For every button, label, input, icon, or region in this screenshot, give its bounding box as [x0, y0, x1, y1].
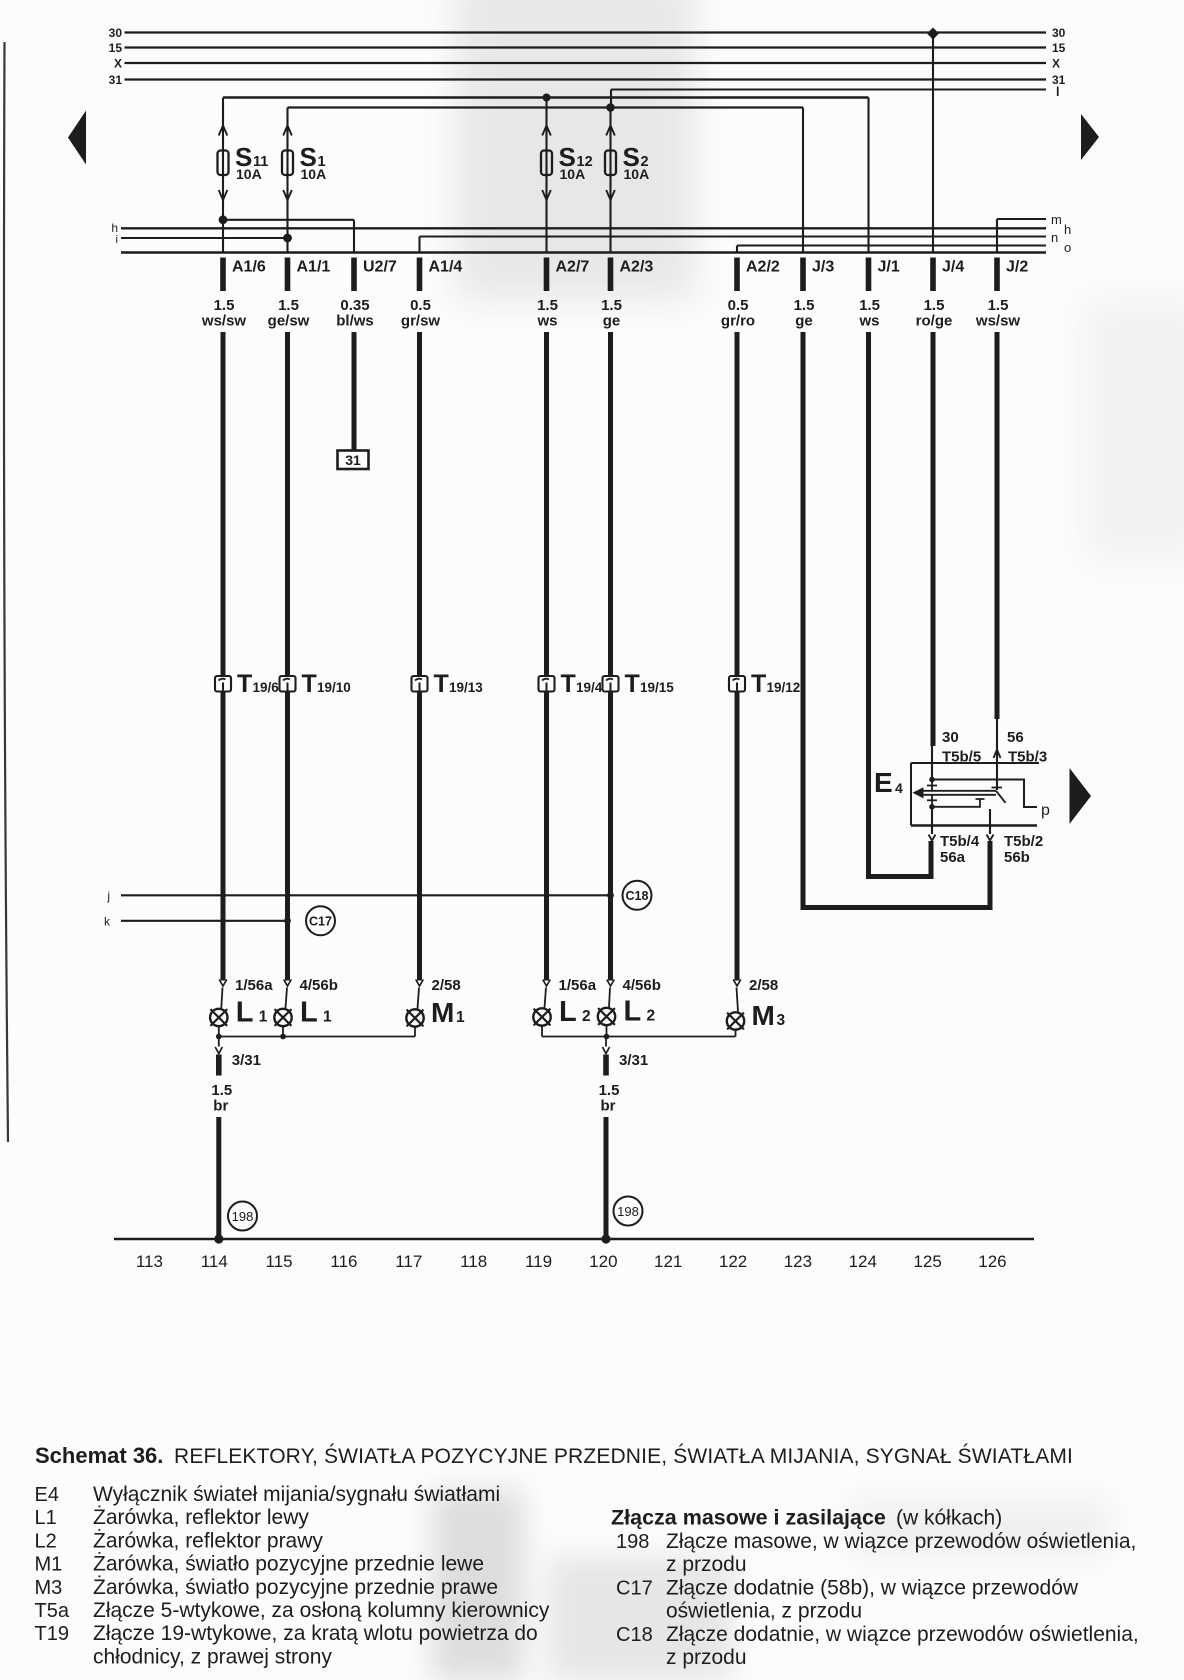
svg-text:M1: M1: [35, 1554, 63, 1576]
svg-text:l: l: [1056, 85, 1059, 99]
svg-text:L: L: [559, 996, 577, 1028]
svg-text:br: br: [213, 1098, 228, 1115]
svg-text:(w kółkach): (w kółkach): [896, 1507, 1002, 1530]
svg-text:h: h: [111, 221, 118, 235]
svg-text:ws: ws: [858, 313, 879, 330]
svg-text:1.5: 1.5: [601, 297, 622, 314]
svg-text:A2/3: A2/3: [620, 259, 654, 276]
svg-text:ge: ge: [603, 313, 621, 330]
svg-text:115: 115: [266, 1252, 293, 1271]
svg-text:n: n: [1051, 230, 1058, 245]
svg-text:T19: T19: [35, 1623, 69, 1645]
svg-text:gr/ro: gr/ro: [721, 313, 755, 330]
svg-text:1.5: 1.5: [211, 1082, 232, 1099]
svg-text:L: L: [300, 997, 318, 1029]
svg-text:L2: L2: [35, 1530, 57, 1552]
svg-text:Złącze 5-wtykowe, za osłoną ko: Złącze 5-wtykowe, za osłoną kolumny kier…: [93, 1599, 550, 1622]
svg-text:3/31: 3/31: [619, 1052, 648, 1069]
svg-text:M: M: [752, 1000, 775, 1031]
svg-text:10A: 10A: [301, 166, 327, 182]
svg-text:ge: ge: [795, 313, 813, 330]
svg-text:T5b/2: T5b/2: [1004, 833, 1043, 850]
svg-text:19/13: 19/13: [449, 680, 483, 695]
svg-text:bl/ws: bl/ws: [336, 313, 374, 330]
svg-text:30: 30: [1052, 26, 1066, 40]
svg-text:1: 1: [259, 1009, 268, 1026]
svg-text:Złącza masowe i zasilające: Złącza masowe i zasilające: [611, 1506, 886, 1530]
svg-text:A1/1: A1/1: [297, 259, 331, 276]
svg-text:Wyłącznik świateł mijania/sygn: Wyłącznik świateł mijania/sygnału światł…: [93, 1483, 500, 1506]
svg-text:C17: C17: [616, 1577, 653, 1599]
svg-text:198: 198: [616, 1531, 649, 1553]
svg-text:30: 30: [109, 26, 123, 40]
svg-text:C18: C18: [616, 1624, 653, 1646]
svg-text:2/58: 2/58: [432, 977, 461, 994]
svg-text:E4: E4: [35, 1484, 59, 1506]
svg-text:J/2: J/2: [1006, 259, 1028, 276]
svg-text:124: 124: [849, 1252, 877, 1271]
svg-text:T5b/3: T5b/3: [1008, 749, 1047, 766]
svg-text:oświetlenia, z przodu: oświetlenia, z przodu: [666, 1600, 862, 1623]
svg-text:M3: M3: [35, 1577, 63, 1599]
svg-text:2: 2: [582, 1008, 591, 1025]
svg-text:Złącze dodatnie, w wiązce prze: Złącze dodatnie, w wiązce przewodów oświ…: [666, 1623, 1139, 1646]
svg-text:1.5: 1.5: [278, 297, 299, 314]
svg-text:1/56a: 1/56a: [559, 977, 597, 994]
svg-text:ro/ge: ro/ge: [916, 313, 953, 330]
svg-text:E: E: [874, 767, 893, 798]
svg-text:br: br: [601, 1098, 616, 1115]
svg-text:0.5: 0.5: [410, 297, 431, 314]
svg-text:T: T: [561, 670, 576, 698]
svg-text:J/4: J/4: [942, 259, 964, 276]
svg-text:1.5: 1.5: [794, 297, 815, 314]
svg-text:19/6: 19/6: [253, 680, 280, 695]
svg-text:0.35: 0.35: [340, 297, 369, 314]
svg-text:Złącze 19-wtykowe, za kratą wl: Złącze 19-wtykowe, za kratą wlotu powiet…: [93, 1622, 538, 1645]
svg-text:Żarówka, reflektor prawy: Żarówka, reflektor prawy: [93, 1529, 323, 1552]
svg-text:19/12: 19/12: [767, 680, 801, 695]
svg-text:ws/sw: ws/sw: [201, 313, 247, 330]
svg-text:4: 4: [895, 780, 903, 796]
svg-text:L: L: [236, 997, 254, 1029]
svg-text:3: 3: [777, 1012, 786, 1029]
svg-text:31: 31: [345, 452, 361, 468]
svg-text:56b: 56b: [1004, 849, 1030, 866]
svg-text:1.5: 1.5: [214, 297, 235, 314]
svg-text:10A: 10A: [236, 166, 262, 182]
svg-text:3/31: 3/31: [232, 1052, 261, 1069]
svg-text:J/3: J/3: [812, 259, 834, 276]
svg-text:4/56b: 4/56b: [300, 977, 338, 994]
svg-text:k: k: [104, 915, 111, 929]
svg-text:Złącze masowe, w wiązce przewo: Złącze masowe, w wiązce przewodów oświet…: [666, 1530, 1136, 1553]
svg-text:A1/4: A1/4: [429, 259, 463, 276]
svg-text:C18: C18: [626, 889, 649, 903]
svg-text:1/56a: 1/56a: [235, 977, 273, 994]
svg-text:p: p: [1041, 802, 1050, 819]
svg-text:J/1: J/1: [878, 259, 900, 276]
svg-text:114: 114: [201, 1252, 228, 1271]
svg-text:z przodu: z przodu: [666, 1646, 747, 1669]
svg-text:ws: ws: [536, 313, 557, 330]
svg-text:m: m: [1051, 212, 1062, 227]
svg-text:118: 118: [460, 1252, 487, 1271]
svg-text:30: 30: [942, 729, 959, 746]
svg-text:198: 198: [617, 1204, 639, 1219]
svg-text:z przodu: z przodu: [666, 1553, 747, 1576]
svg-text:121: 121: [654, 1252, 682, 1271]
svg-text:A2/7: A2/7: [556, 259, 590, 276]
svg-text:gr/sw: gr/sw: [401, 313, 441, 330]
svg-text:X: X: [114, 57, 122, 71]
svg-text:56: 56: [1007, 729, 1024, 746]
svg-text:117: 117: [395, 1252, 422, 1271]
svg-text:1.5: 1.5: [537, 297, 558, 314]
svg-text:Złącze dodatnie (58b), w wiązc: Złącze dodatnie (58b), w wiązce przewodó…: [666, 1576, 1079, 1599]
svg-text:T: T: [434, 670, 449, 698]
svg-text:4/56b: 4/56b: [623, 977, 661, 994]
svg-text:119: 119: [525, 1252, 552, 1271]
svg-text:198: 198: [232, 1209, 254, 1224]
svg-text:31: 31: [109, 73, 123, 87]
svg-text:Żarówka, reflektor lewy: Żarówka, reflektor lewy: [93, 1506, 309, 1529]
svg-text:10A: 10A: [560, 166, 586, 182]
svg-text:L: L: [624, 996, 642, 1028]
svg-text:123: 123: [784, 1252, 812, 1271]
svg-text:h: h: [1064, 222, 1071, 237]
svg-text:j: j: [106, 889, 110, 903]
svg-text:1.5: 1.5: [924, 297, 945, 314]
svg-text:125: 125: [913, 1252, 941, 1271]
svg-text:19/10: 19/10: [317, 680, 351, 695]
svg-text:2: 2: [647, 1008, 656, 1025]
svg-text:T5b/4: T5b/4: [940, 833, 980, 850]
svg-text:T5b/5: T5b/5: [942, 749, 981, 766]
svg-text:Schemat 36.: Schemat 36.: [35, 1443, 163, 1468]
svg-text:T: T: [625, 670, 640, 698]
svg-text:116: 116: [330, 1252, 357, 1271]
svg-text:2/58: 2/58: [749, 977, 778, 994]
svg-text:10A: 10A: [624, 166, 650, 182]
svg-text:U2/7: U2/7: [363, 259, 397, 276]
svg-text:ge/sw: ge/sw: [268, 313, 310, 330]
svg-text:A2/2: A2/2: [746, 259, 780, 276]
svg-text:Żarówka, światło pozycyjne prz: Żarówka, światło pozycyjne przednie praw…: [93, 1576, 498, 1599]
svg-text:REFLEKTORY, ŚWIATŁA POZYCYJNE: REFLEKTORY, ŚWIATŁA POZYCYJNE PRZEDNIE, …: [174, 1444, 1073, 1468]
svg-text:56a: 56a: [940, 849, 966, 866]
svg-text:1.5: 1.5: [859, 297, 880, 314]
svg-text:o: o: [1064, 240, 1071, 255]
svg-text:0.5: 0.5: [728, 297, 749, 314]
svg-text:120: 120: [589, 1252, 617, 1271]
svg-text:113: 113: [136, 1252, 163, 1271]
svg-text:1.5: 1.5: [599, 1082, 620, 1099]
svg-text:1: 1: [323, 1009, 332, 1026]
svg-text:19/4: 19/4: [576, 680, 603, 695]
svg-text:15: 15: [109, 41, 123, 55]
svg-text:L1: L1: [35, 1507, 57, 1529]
svg-text:T: T: [302, 670, 317, 698]
svg-text:1.5: 1.5: [988, 297, 1009, 314]
svg-text:T: T: [751, 670, 766, 698]
svg-text:T: T: [237, 670, 252, 698]
svg-text:chłodnicy, z prawej strony: chłodnicy, z prawej strony: [93, 1645, 332, 1668]
svg-text:1: 1: [456, 1009, 465, 1026]
svg-text:M: M: [431, 997, 454, 1028]
svg-text:i: i: [116, 234, 118, 246]
svg-text:Żarówka, światło pozycyjne prz: Żarówka, światło pozycyjne przednie lewe: [93, 1553, 484, 1576]
svg-text:126: 126: [978, 1252, 1006, 1271]
svg-text:ws/sw: ws/sw: [975, 313, 1021, 330]
svg-text:19/15: 19/15: [640, 680, 674, 695]
svg-text:A1/6: A1/6: [232, 259, 266, 276]
svg-text:122: 122: [719, 1252, 747, 1271]
svg-text:C17: C17: [309, 915, 332, 929]
svg-text:T5a: T5a: [35, 1600, 70, 1622]
svg-text:15: 15: [1052, 41, 1066, 55]
svg-text:X: X: [1052, 57, 1060, 71]
